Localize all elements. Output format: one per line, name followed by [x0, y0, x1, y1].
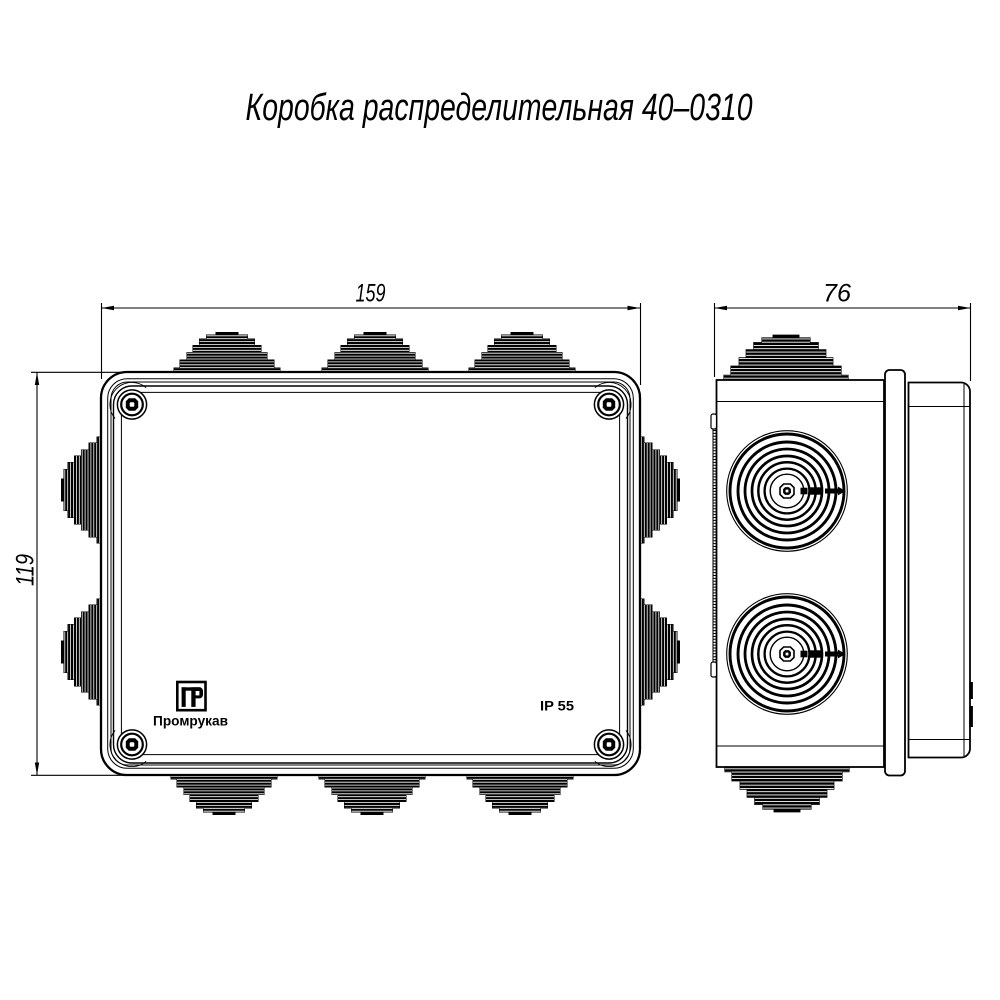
svg-text:IP 55: IP 55 — [540, 699, 575, 714]
svg-text:119: 119 — [12, 554, 40, 586]
svg-text:159: 159 — [356, 280, 386, 308]
svg-text:Коробка распределительная 40–0: Коробка распределительная 40–0310 — [246, 87, 753, 129]
svg-text:76: 76 — [823, 280, 851, 308]
svg-text:Промрукав: Промрукав — [153, 714, 228, 729]
